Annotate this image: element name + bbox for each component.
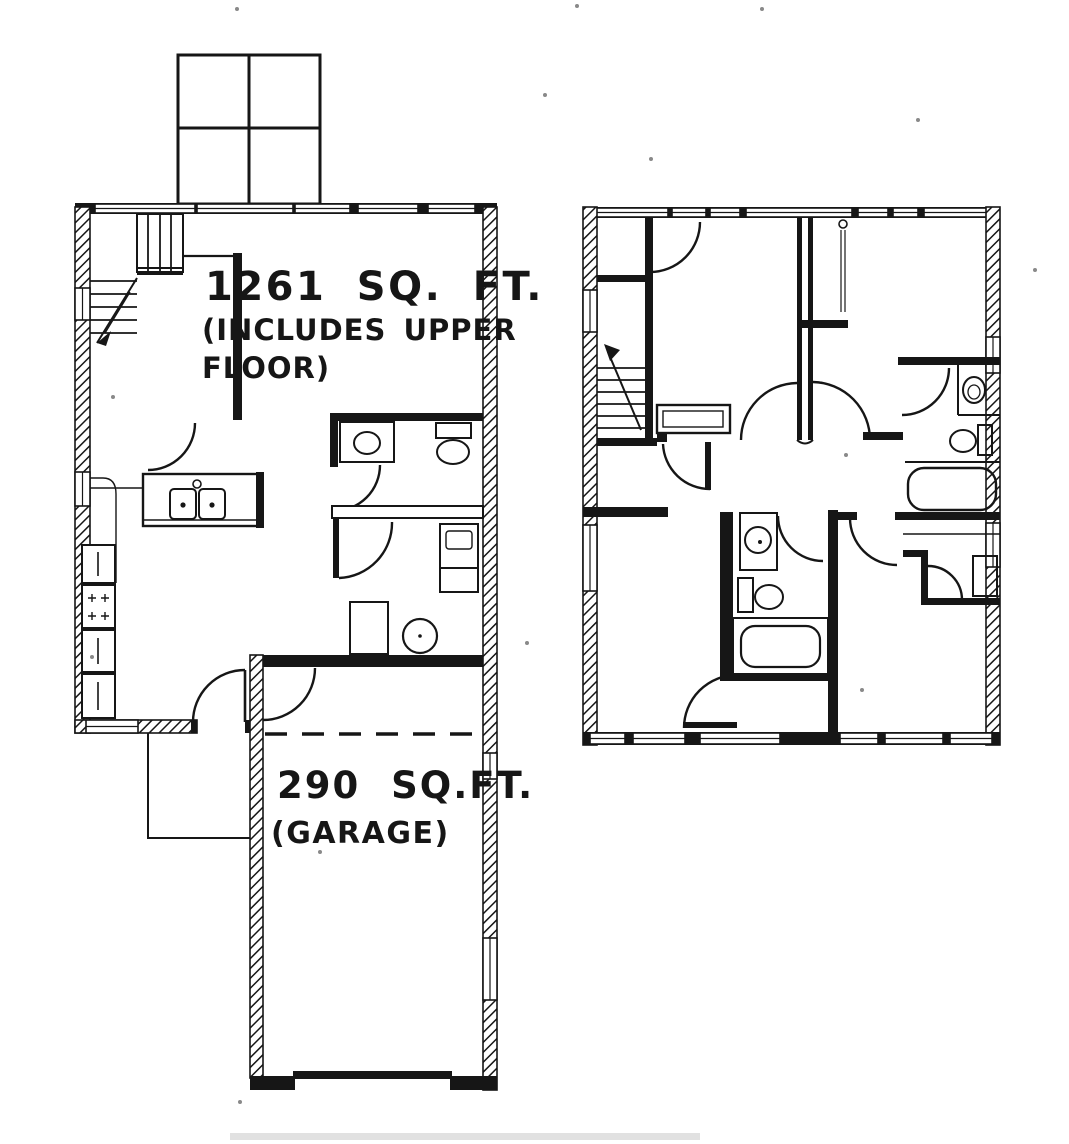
window-icon (95, 204, 475, 213)
water-heater-icon (403, 619, 437, 653)
bedroom-door-arc (741, 383, 797, 440)
master-bathroom (833, 357, 1000, 520)
bedroom-door-arc (813, 382, 870, 440)
main-floor-area-note-2: FLOOR) (202, 351, 330, 385)
bathroom-sink-icon (745, 527, 771, 553)
deck-icon (178, 55, 320, 204)
refrigerator-icon (82, 630, 115, 718)
bottom-right-bedroom (850, 518, 1000, 605)
main-floor-plan: 1261 SQ. FT. (INCLUDES UPPER FLOOR) (75, 55, 544, 1090)
window-icon (592, 208, 990, 217)
bedroom-door-arc (650, 222, 700, 272)
garage-service-door-arc (263, 668, 315, 720)
hall-wall (863, 432, 903, 440)
bathroom-door-arc (778, 516, 823, 561)
scan-streak (230, 1133, 700, 1140)
door-leaf (333, 518, 339, 578)
bedroom-wall (583, 507, 668, 517)
bathroom-door-arc (902, 368, 949, 415)
bathtub-icon (908, 468, 996, 510)
main-floor-area-note-1: (INCLUDES UPPER (202, 313, 517, 347)
cabinet-icon (350, 602, 388, 654)
vanity (340, 422, 394, 462)
stairs-icon (597, 344, 645, 430)
utility-door-arc (339, 522, 392, 578)
garage-house-wall (250, 655, 483, 667)
bedroom-door-arc (850, 518, 897, 565)
floor-plan-sheet: 1261 SQ. FT. (INCLUDES UPPER FLOOR) 290 … (0, 0, 1069, 1144)
bathtub-icon (741, 626, 820, 667)
bathroom-door-arc (334, 465, 380, 511)
closet-rod-icon (839, 220, 847, 312)
central-wall (797, 218, 813, 444)
porch-outline (148, 733, 250, 838)
kitchen-door-arc (148, 423, 195, 470)
bathroom-sink-icon (963, 377, 985, 403)
kitchen-double-sink-icon (170, 480, 225, 519)
floor-plan-drawing: 1261 SQ. FT. (INCLUDES UPPER FLOOR) 290 … (0, 0, 1069, 1144)
bedroom-door-arc (684, 675, 737, 728)
main-bathroom (330, 413, 483, 511)
garage-door-opening (250, 1071, 497, 1090)
range-icon (82, 585, 115, 628)
bedroom-wall (828, 510, 838, 745)
bathroom-sink-icon (354, 432, 380, 454)
closet-door-arc (928, 566, 962, 600)
utility-room (333, 518, 478, 654)
upper-floor-plan (583, 207, 1000, 745)
cavity-wall (332, 506, 483, 518)
door-leaf (683, 722, 737, 728)
garage-name-label: (GARAGE) (271, 816, 450, 851)
closet-wall (797, 320, 848, 328)
entry-door (191, 670, 251, 733)
entry-door-arc (193, 670, 245, 722)
hall-door-arc (663, 444, 710, 489)
stairs-icon (90, 214, 183, 346)
stair-wall (597, 438, 657, 446)
main-floor-area-label: 1261 SQ. FT. (205, 264, 544, 310)
washer-dryer-icon (440, 524, 478, 592)
hall-bathroom (720, 512, 838, 681)
dishwasher-icon (82, 545, 115, 583)
garage-area-label: 290 SQ.FT. (277, 764, 534, 807)
closet-wall (597, 275, 648, 282)
counter-end-wall (256, 472, 264, 528)
window-icon (86, 720, 138, 733)
door-leaf (705, 442, 711, 490)
bedroom-wall (645, 218, 653, 440)
linen-closet (657, 405, 730, 442)
kitchen (82, 423, 264, 718)
toilet-icon (738, 578, 783, 612)
garage-left-wall (250, 655, 263, 1078)
toilet-icon (436, 423, 471, 464)
